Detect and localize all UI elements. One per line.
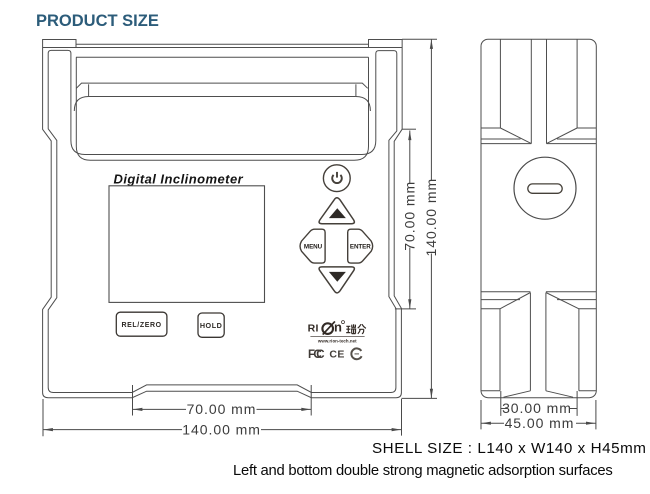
svg-text:E: E bbox=[337, 349, 344, 361]
svg-text:C: C bbox=[316, 349, 324, 361]
svg-text:n: n bbox=[334, 319, 342, 334]
svg-text:30.00 mm: 30.00 mm bbox=[502, 400, 572, 416]
svg-text:RI: RI bbox=[308, 323, 319, 335]
svg-text:45.00 mm: 45.00 mm bbox=[505, 415, 575, 431]
svg-text:SHELL SIZE : L140 x W140 x H45: SHELL SIZE : L140 x W140 x H45mm bbox=[372, 440, 646, 457]
svg-text:70.00 mm: 70.00 mm bbox=[187, 401, 257, 417]
svg-text:C: C bbox=[329, 349, 337, 361]
svg-text:70.00 mm: 70.00 mm bbox=[401, 181, 417, 251]
svg-text:www.rion-tech.net: www.rion-tech.net bbox=[317, 339, 357, 344]
svg-text:HOLD: HOLD bbox=[200, 321, 223, 330]
svg-text:140.00 mm: 140.00 mm bbox=[182, 421, 261, 437]
svg-text:Left and bottom double strong: Left and bottom double strong magnetic a… bbox=[233, 463, 613, 479]
svg-text:Digital Inclinometer: Digital Inclinometer bbox=[114, 172, 244, 187]
svg-text:MENU: MENU bbox=[304, 244, 323, 251]
svg-text:REL/ZERO: REL/ZERO bbox=[121, 322, 161, 329]
svg-text:ENTER: ENTER bbox=[350, 244, 371, 251]
svg-text:140.00 mm: 140.00 mm bbox=[423, 178, 439, 257]
svg-text:PRODUCT SIZE: PRODUCT SIZE bbox=[36, 12, 159, 30]
